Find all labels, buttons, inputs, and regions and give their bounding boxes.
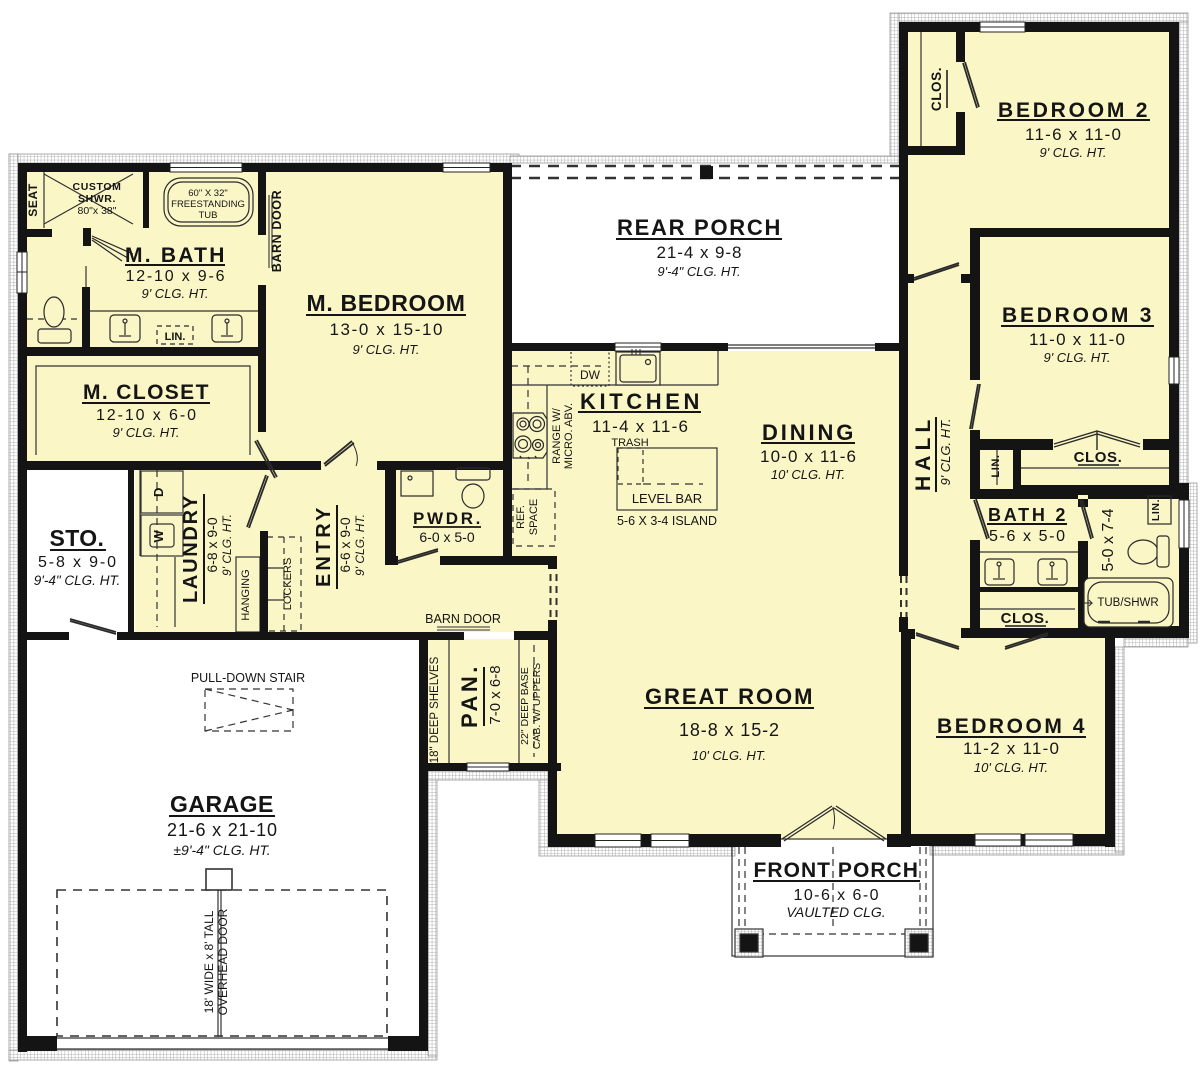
svg-text:LEVEL BAR: LEVEL BAR — [632, 491, 702, 506]
svg-text:11-4 x 11-6: 11-4 x 11-6 — [592, 417, 688, 436]
svg-text:11-2 x 11-0: 11-2 x 11-0 — [963, 739, 1059, 758]
svg-text:9' CLG. HT.: 9' CLG. HT. — [1039, 145, 1106, 160]
svg-text:11-6 x 11-0: 11-6 x 11-0 — [1025, 125, 1121, 144]
svg-text:18-8 x 15-2: 18-8 x 15-2 — [679, 720, 779, 740]
svg-text:D: D — [151, 487, 166, 497]
svg-text:LIN.: LIN. — [165, 331, 186, 343]
svg-text:LOCKERS: LOCKERS — [282, 558, 294, 611]
svg-text:FRONT PORCH: FRONT PORCH — [754, 859, 919, 882]
svg-text:22" DEEP BASE: 22" DEEP BASE — [519, 667, 531, 745]
svg-text:M. CLOSET: M. CLOSET — [83, 381, 209, 404]
svg-text:21-4 x 9-8: 21-4 x 9-8 — [657, 243, 742, 262]
svg-text:9' CLG. HT.: 9' CLG. HT. — [352, 342, 419, 357]
svg-text:TUB: TUB — [199, 210, 218, 221]
svg-text:21-6 x 21-10: 21-6 x 21-10 — [167, 820, 277, 840]
svg-text:9' CLG. HT.: 9' CLG. HT. — [220, 514, 234, 576]
svg-text:6-6 x 9-0: 6-6 x 9-0 — [337, 517, 353, 572]
svg-text:DINING: DINING — [762, 420, 854, 445]
svg-text:M. BEDROOM: M. BEDROOM — [307, 290, 466, 316]
svg-text:ENTRY: ENTRY — [313, 507, 335, 587]
svg-text:DW: DW — [580, 368, 601, 382]
svg-text:LIN.: LIN. — [990, 454, 1002, 477]
svg-text:RANGE W/: RANGE W/ — [551, 407, 563, 464]
svg-text:REF.: REF. — [515, 505, 527, 529]
svg-text:5-6 x 5-0: 5-6 x 5-0 — [989, 528, 1065, 545]
svg-text:9' CLG. HT.: 9' CLG. HT. — [353, 514, 367, 576]
svg-text:5-8 x 9-0: 5-8 x 9-0 — [38, 554, 116, 571]
svg-text:10-0 x 11-6: 10-0 x 11-6 — [760, 447, 856, 466]
svg-text:12-10 x 6-0: 12-10 x 6-0 — [96, 407, 196, 424]
svg-text:6-8 x 9-0: 6-8 x 9-0 — [204, 517, 220, 572]
svg-text:5-6 X 3-4 ISLAND: 5-6 X 3-4 ISLAND — [617, 514, 717, 528]
svg-text:10' CLG. HT.: 10' CLG. HT. — [974, 760, 1048, 775]
svg-text:BARN DOOR: BARN DOOR — [270, 190, 284, 272]
svg-text:13-0 x 15-10: 13-0 x 15-10 — [330, 320, 443, 339]
svg-text:9' CLG. HT.: 9' CLG. HT. — [1043, 350, 1110, 365]
svg-text:80"x 38": 80"x 38" — [78, 205, 117, 217]
svg-text:W: W — [151, 529, 166, 542]
svg-text:TRASH: TRASH — [611, 437, 648, 449]
svg-text:HALL: HALL — [912, 419, 935, 491]
svg-text:10' CLG. HT.: 10' CLG. HT. — [692, 748, 766, 763]
svg-text:BARN DOOR: BARN DOOR — [425, 612, 501, 626]
svg-text:5-0 x 7-4: 5-0 x 7-4 — [1100, 508, 1117, 571]
svg-text:18" DEEP SHELVES: 18" DEEP SHELVES — [429, 656, 441, 763]
svg-text:10' CLG. HT.: 10' CLG. HT. — [771, 467, 845, 482]
svg-text:PULL-DOWN STAIR: PULL-DOWN STAIR — [191, 671, 305, 685]
svg-text:18' WIDE x 8' TALL: 18' WIDE x 8' TALL — [202, 910, 216, 1013]
svg-text:9' CLG. HT.: 9' CLG. HT. — [112, 425, 179, 440]
svg-text:LIN.: LIN. — [1150, 499, 1162, 521]
svg-text:11-0 x 11-0: 11-0 x 11-0 — [1029, 330, 1125, 349]
svg-text:GARAGE: GARAGE — [170, 791, 274, 817]
svg-text:HANGING: HANGING — [240, 569, 252, 620]
svg-text:6-0 x 5-0: 6-0 x 5-0 — [419, 529, 474, 545]
svg-text:±9'-4" CLG. HT.: ±9'-4" CLG. HT. — [173, 842, 270, 858]
svg-text:CLOS.: CLOS. — [1074, 449, 1123, 466]
svg-text:9'-4" CLG. HT.: 9'-4" CLG. HT. — [34, 573, 120, 588]
svg-text:12-10 x 9-6: 12-10 x 9-6 — [126, 268, 225, 285]
svg-text:STO.: STO. — [50, 525, 105, 551]
svg-text:TUB/SHWR: TUB/SHWR — [1097, 597, 1158, 609]
svg-text:9'-4" CLG. HT.: 9'-4" CLG. HT. — [657, 264, 740, 279]
svg-text:MICRO. ABV.: MICRO. ABV. — [563, 403, 575, 469]
svg-text:SPACE: SPACE — [528, 499, 540, 535]
svg-text:CLOS.: CLOS. — [929, 67, 944, 111]
svg-text:PWDR.: PWDR. — [413, 509, 481, 528]
svg-text:7-0 x 6-8: 7-0 x 6-8 — [487, 665, 504, 724]
svg-text:REAR PORCH: REAR PORCH — [617, 215, 781, 240]
svg-text:VAULTED CLG.: VAULTED CLG. — [786, 904, 885, 920]
svg-text:FREESTANDING: FREESTANDING — [171, 199, 245, 210]
svg-text:CAB. W/ UPPERS: CAB. W/ UPPERS — [531, 663, 543, 749]
svg-text:SHWR.: SHWR. — [78, 193, 116, 205]
svg-text:9' CLG. HT.: 9' CLG. HT. — [141, 286, 208, 301]
svg-text:SEAT: SEAT — [26, 183, 40, 217]
svg-text:LAUNDRY: LAUNDRY — [180, 495, 202, 603]
svg-text:CLOS.: CLOS. — [1001, 610, 1050, 627]
svg-text:9' CLG. HT.: 9' CLG. HT. — [938, 418, 953, 485]
svg-text:M. BATH: M. BATH — [125, 244, 225, 267]
svg-text:60" X 32": 60" X 32" — [188, 188, 228, 199]
svg-text:CUSTOM: CUSTOM — [73, 181, 122, 193]
svg-text:OVERHEAD DOOR: OVERHEAD DOOR — [216, 908, 230, 1015]
